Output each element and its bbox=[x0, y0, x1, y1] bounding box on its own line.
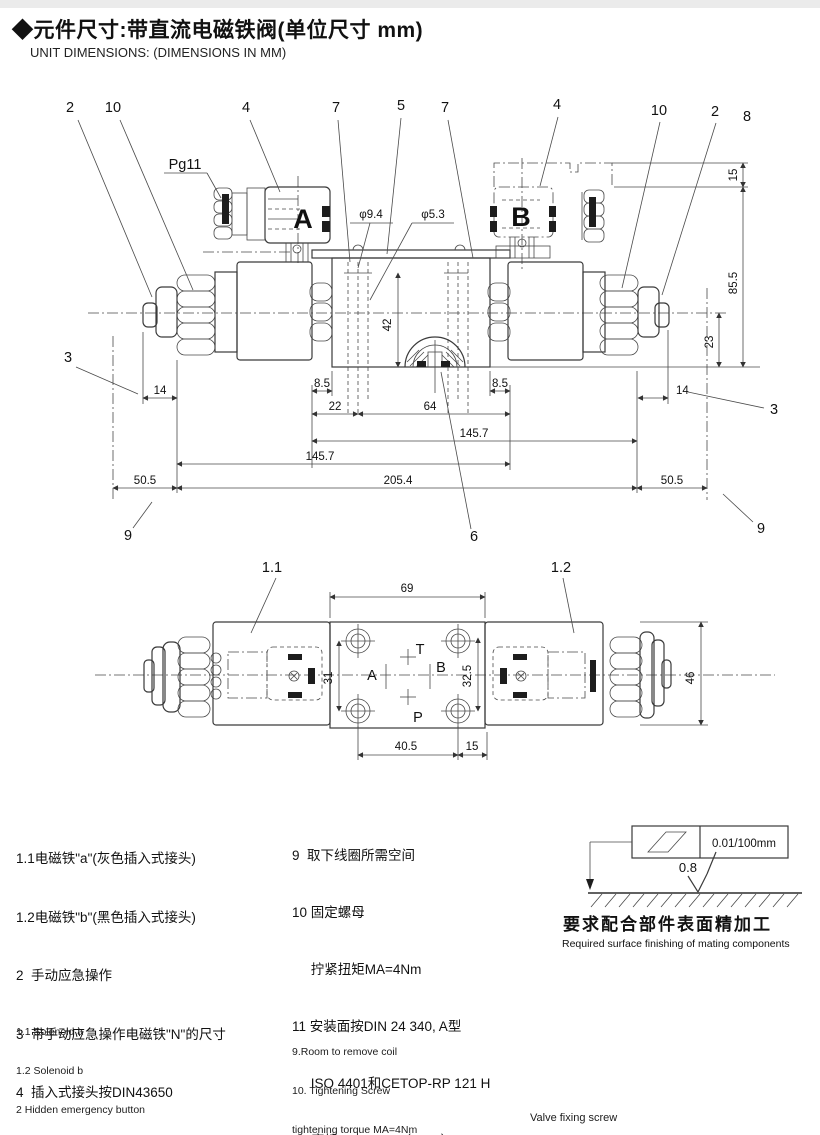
page-title: ◆元件尺寸:带直流电磁铁阀(单位尺寸 mm) bbox=[12, 14, 423, 44]
mounting-hole-right bbox=[444, 262, 468, 415]
callout-6: 6 bbox=[470, 529, 478, 545]
callout-4: 4 bbox=[553, 97, 561, 113]
dim-label: 64 bbox=[424, 401, 437, 413]
callout-8: 8 bbox=[743, 109, 751, 125]
plan-dimensions: 69 31 32.5 40.5 15 46 bbox=[323, 583, 708, 760]
connector-a: A bbox=[214, 187, 330, 262]
note-line: 9 取下线圈所需空间 bbox=[292, 846, 490, 865]
plan-solenoid-b bbox=[485, 622, 671, 725]
solenoid-a bbox=[143, 262, 312, 360]
note-line: tightening torque MA=4Nm bbox=[292, 1124, 496, 1135]
valve-body bbox=[310, 245, 510, 415]
callout-4: 4 bbox=[242, 100, 250, 116]
mounting-hole-left bbox=[344, 262, 372, 415]
dim-label: 8.5 bbox=[314, 378, 330, 390]
hatching bbox=[591, 894, 798, 907]
dim-label: 50.5 bbox=[134, 475, 156, 487]
dim-label: 205.4 bbox=[384, 475, 413, 487]
datasheet-page: ◆元件尺寸:带直流电磁铁阀(单位尺寸 mm) UNIT DIMENSIONS: … bbox=[0, 0, 820, 1135]
note-line: 1.1 Solenoid a bbox=[16, 1026, 185, 1039]
o-ring-port bbox=[405, 337, 465, 393]
callout-7: 7 bbox=[441, 100, 449, 116]
solenoid-b bbox=[508, 262, 669, 360]
callout-2: 2 bbox=[711, 104, 719, 120]
connector-removal-outline bbox=[494, 163, 612, 187]
port-b-label: B bbox=[436, 660, 446, 676]
port-a-label: A bbox=[367, 668, 377, 684]
callout-1-2: 1.2 bbox=[551, 560, 571, 576]
dim-label: 31 bbox=[323, 672, 335, 685]
port-p-label: P bbox=[413, 710, 423, 726]
callout-9: 9 bbox=[757, 521, 765, 537]
port-boss-left bbox=[310, 283, 332, 341]
axis-lines bbox=[88, 158, 728, 500]
plan-solenoid-a bbox=[144, 622, 330, 725]
valve-fixing-note: Valve fixing screw M5x50-10.9 grade GB/T… bbox=[530, 1085, 698, 1135]
hole-dia-label: φ9.4 bbox=[359, 209, 383, 221]
dim-label: 69 bbox=[401, 583, 414, 595]
hole-dia-label: φ5.3 bbox=[421, 209, 444, 221]
callout-5: 5 bbox=[397, 98, 405, 114]
scan-top-strip bbox=[0, 0, 820, 8]
plug-connector-b-face bbox=[493, 647, 548, 700]
surface-caption-zh: 要求配合部件表面精加工 bbox=[563, 910, 772, 935]
note-line: 10. Tightening Screw bbox=[292, 1085, 496, 1098]
dim-label: 32.5 bbox=[462, 665, 474, 687]
pg11-label: Pg11 bbox=[169, 157, 202, 173]
port-t-label: T bbox=[416, 642, 425, 658]
dim-label: 145.7 bbox=[460, 428, 489, 440]
side-view-drawing: A B bbox=[0, 85, 820, 545]
note-line: 2 Hidden emergency button bbox=[16, 1104, 185, 1117]
dim-label: 14 bbox=[154, 385, 167, 397]
dim-label: 50.5 bbox=[661, 475, 683, 487]
mounting-hole bbox=[441, 624, 475, 658]
note-line: 2 手动应急操作 bbox=[16, 966, 226, 986]
callout-1-1: 1.1 bbox=[262, 560, 282, 576]
notes-mid-en: 9.Room to remove coil 10. Tightening Scr… bbox=[292, 1020, 496, 1135]
manual-override-button-b bbox=[655, 303, 669, 327]
mounting-hole bbox=[341, 624, 375, 658]
manual-override-cap-a bbox=[156, 287, 177, 337]
plug-connector-a-face bbox=[267, 647, 322, 700]
dim-label: 46 bbox=[685, 672, 697, 685]
dim-label: 85.5 bbox=[728, 272, 740, 294]
note-line: 1.2 Solenoid b bbox=[16, 1065, 185, 1078]
manual-override-button-a bbox=[143, 303, 157, 327]
callout-3: 3 bbox=[64, 350, 72, 366]
notes-left-en: 1.1 Solenoid a 1.2 Solenoid b 2 Hidden e… bbox=[16, 1000, 185, 1135]
dim-label: 14 bbox=[676, 385, 689, 397]
dim-label: 15 bbox=[728, 169, 740, 182]
connector-b: B bbox=[490, 163, 612, 258]
note-line: 9.Room to remove coil bbox=[292, 1046, 496, 1059]
callout-7: 7 bbox=[332, 100, 340, 116]
mounting-hole bbox=[341, 694, 375, 728]
dim-label: 42 bbox=[382, 319, 394, 332]
roughness-value: 0.8 bbox=[679, 860, 697, 875]
leader-arrow-icon bbox=[586, 879, 594, 890]
dim-label: 15 bbox=[466, 741, 479, 753]
note-line: 1.2电磁铁"b"(黑色插入式接头) bbox=[16, 908, 226, 928]
dim-label: 145.7 bbox=[306, 451, 335, 463]
port-boss-right bbox=[488, 283, 510, 341]
surface-caption-en: Required surface finishing of mating com… bbox=[562, 938, 790, 950]
page-subtitle: UNIT DIMENSIONS: (DIMENSIONS IN MM) bbox=[30, 45, 286, 60]
note-line: 拧紧扭矩MA=4Nm bbox=[292, 960, 490, 979]
dim-label: 23 bbox=[704, 336, 716, 349]
callout-10: 10 bbox=[105, 100, 121, 116]
callout-3: 3 bbox=[770, 402, 778, 418]
callout-2: 2 bbox=[66, 100, 74, 116]
flatness-icon bbox=[648, 832, 686, 852]
solenoid-b-letter: B bbox=[511, 202, 531, 232]
note-line: 1.1电磁铁"a"(灰色插入式接头) bbox=[16, 849, 226, 869]
extension-lines bbox=[143, 163, 760, 493]
mounting-hole bbox=[441, 694, 475, 728]
plan-view-drawing: T A B P bbox=[0, 545, 820, 790]
callout-10: 10 bbox=[651, 103, 667, 119]
note-line: Valve fixing screw bbox=[530, 1112, 698, 1126]
note-line: 10 固定螺母 bbox=[292, 903, 490, 922]
flatness-value: 0.01/100mm bbox=[712, 838, 776, 850]
callout-9: 9 bbox=[124, 528, 132, 544]
dim-label: 40.5 bbox=[395, 741, 417, 753]
solenoid-a-letter: A bbox=[293, 204, 313, 234]
dim-label: 22 bbox=[329, 401, 342, 413]
dim-label: 8.5 bbox=[492, 378, 508, 390]
fixing-nut-cap-b bbox=[638, 287, 659, 337]
